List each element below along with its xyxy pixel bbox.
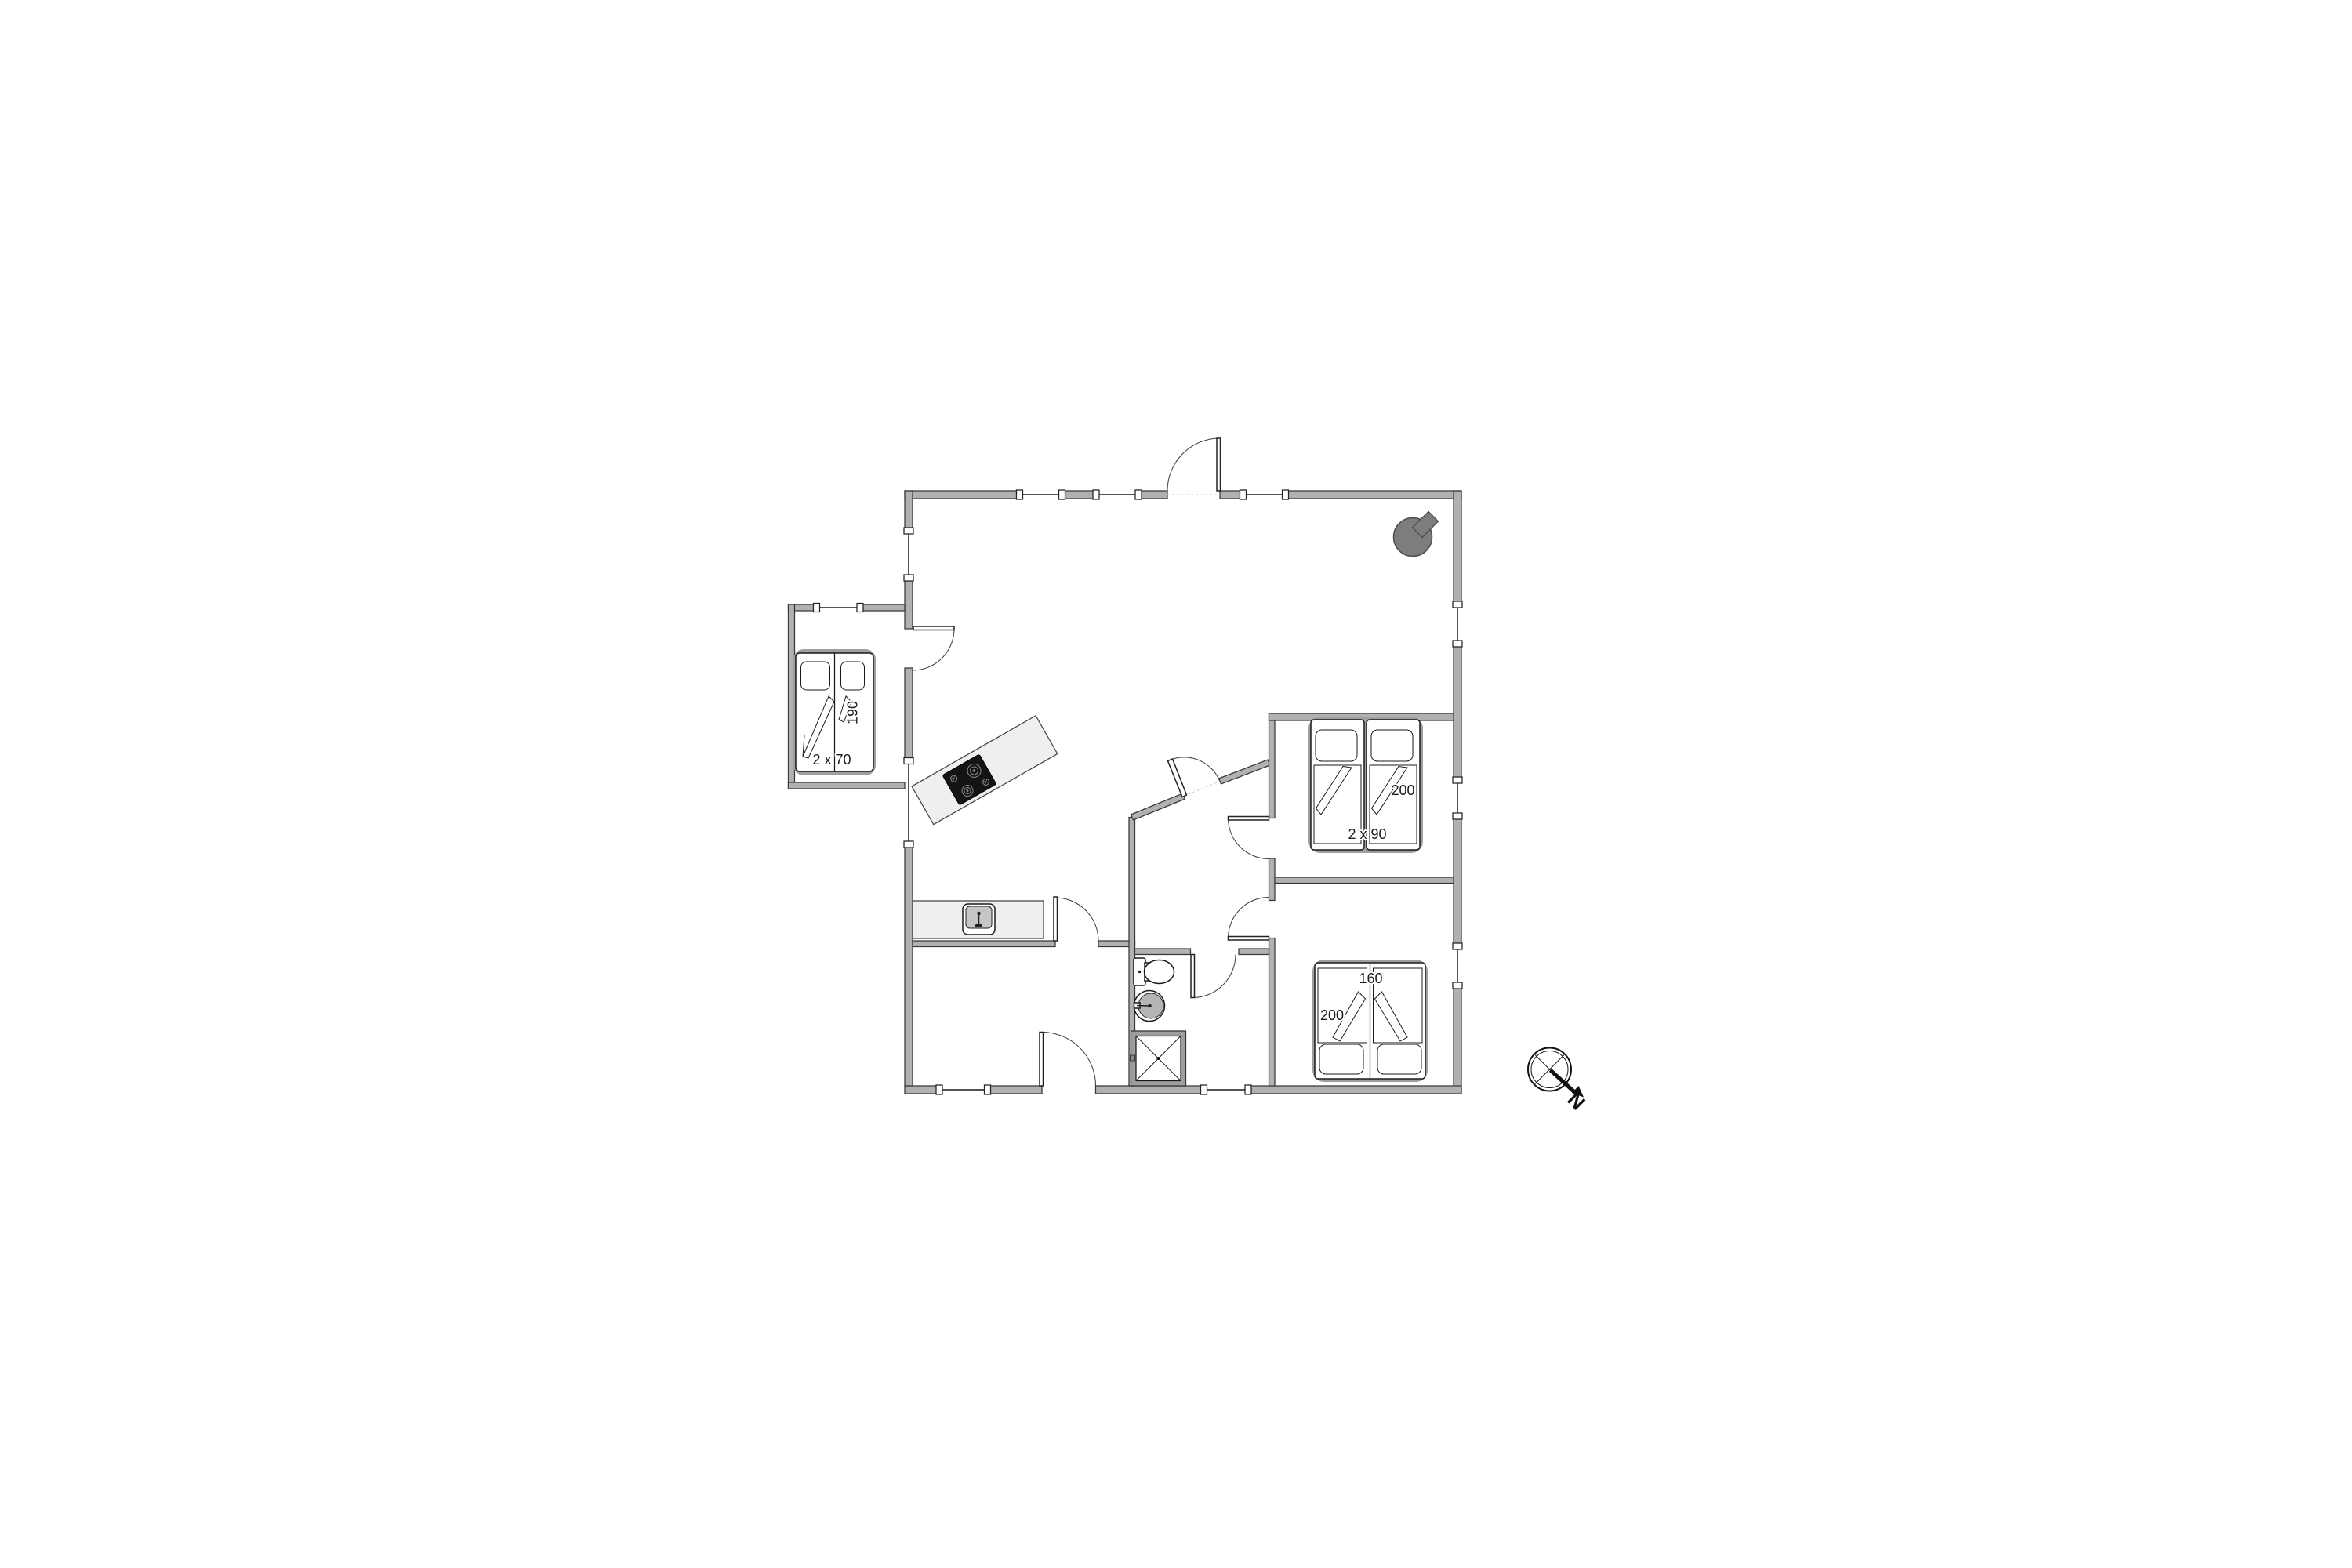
- toilet: [1134, 958, 1174, 985]
- annex-door: [913, 626, 954, 670]
- dim-label-twin-width: 2 x 90: [1348, 826, 1386, 842]
- window: [904, 528, 913, 581]
- window: [1453, 601, 1462, 647]
- double-bedroom-door: [1229, 898, 1269, 941]
- window: [904, 758, 913, 848]
- window: [1201, 1085, 1252, 1094]
- floorplan-svg: 2 x 70 190 200 2 x 90 160 200 N: [588, 0, 1764, 1568]
- hall-door: [1168, 757, 1221, 797]
- kitchen-room-door: [1054, 897, 1098, 941]
- compass-north-label: N: [1563, 1087, 1589, 1114]
- kitchen-sink: [963, 904, 995, 935]
- window: [1017, 490, 1065, 499]
- kitchen-sink-counter: [913, 901, 1044, 938]
- dim-label-twin-length: 200: [1391, 782, 1414, 798]
- wood-stove: [1394, 512, 1439, 557]
- shower: [1131, 1031, 1186, 1086]
- patio-door: [1040, 1033, 1096, 1087]
- window: [1240, 490, 1289, 499]
- diagonal-wall: [1219, 760, 1271, 784]
- window: [936, 1085, 991, 1094]
- entrance-door: [1167, 438, 1221, 495]
- window: [1453, 943, 1462, 989]
- floorplan-page: 2 x 70 190 200 2 x 90 160 200 N: [0, 0, 2352, 1568]
- compass-rose: N: [1528, 1048, 1590, 1115]
- bathroom-door: [1191, 955, 1236, 998]
- dim-label-annex-width: 2 x 70: [812, 752, 851, 768]
- twin-bedroom-door: [1229, 817, 1269, 859]
- window: [1093, 490, 1142, 499]
- kitchen-island-counter: [912, 716, 1058, 825]
- window: [814, 604, 864, 612]
- bathroom-sink: [1134, 991, 1165, 1022]
- window: [1453, 777, 1462, 819]
- dim-label-annex-length: 190: [845, 701, 861, 724]
- dim-label-double-length: 200: [1320, 1007, 1344, 1023]
- diagonal-wall: [1131, 793, 1185, 820]
- dim-label-double-width: 160: [1359, 971, 1382, 986]
